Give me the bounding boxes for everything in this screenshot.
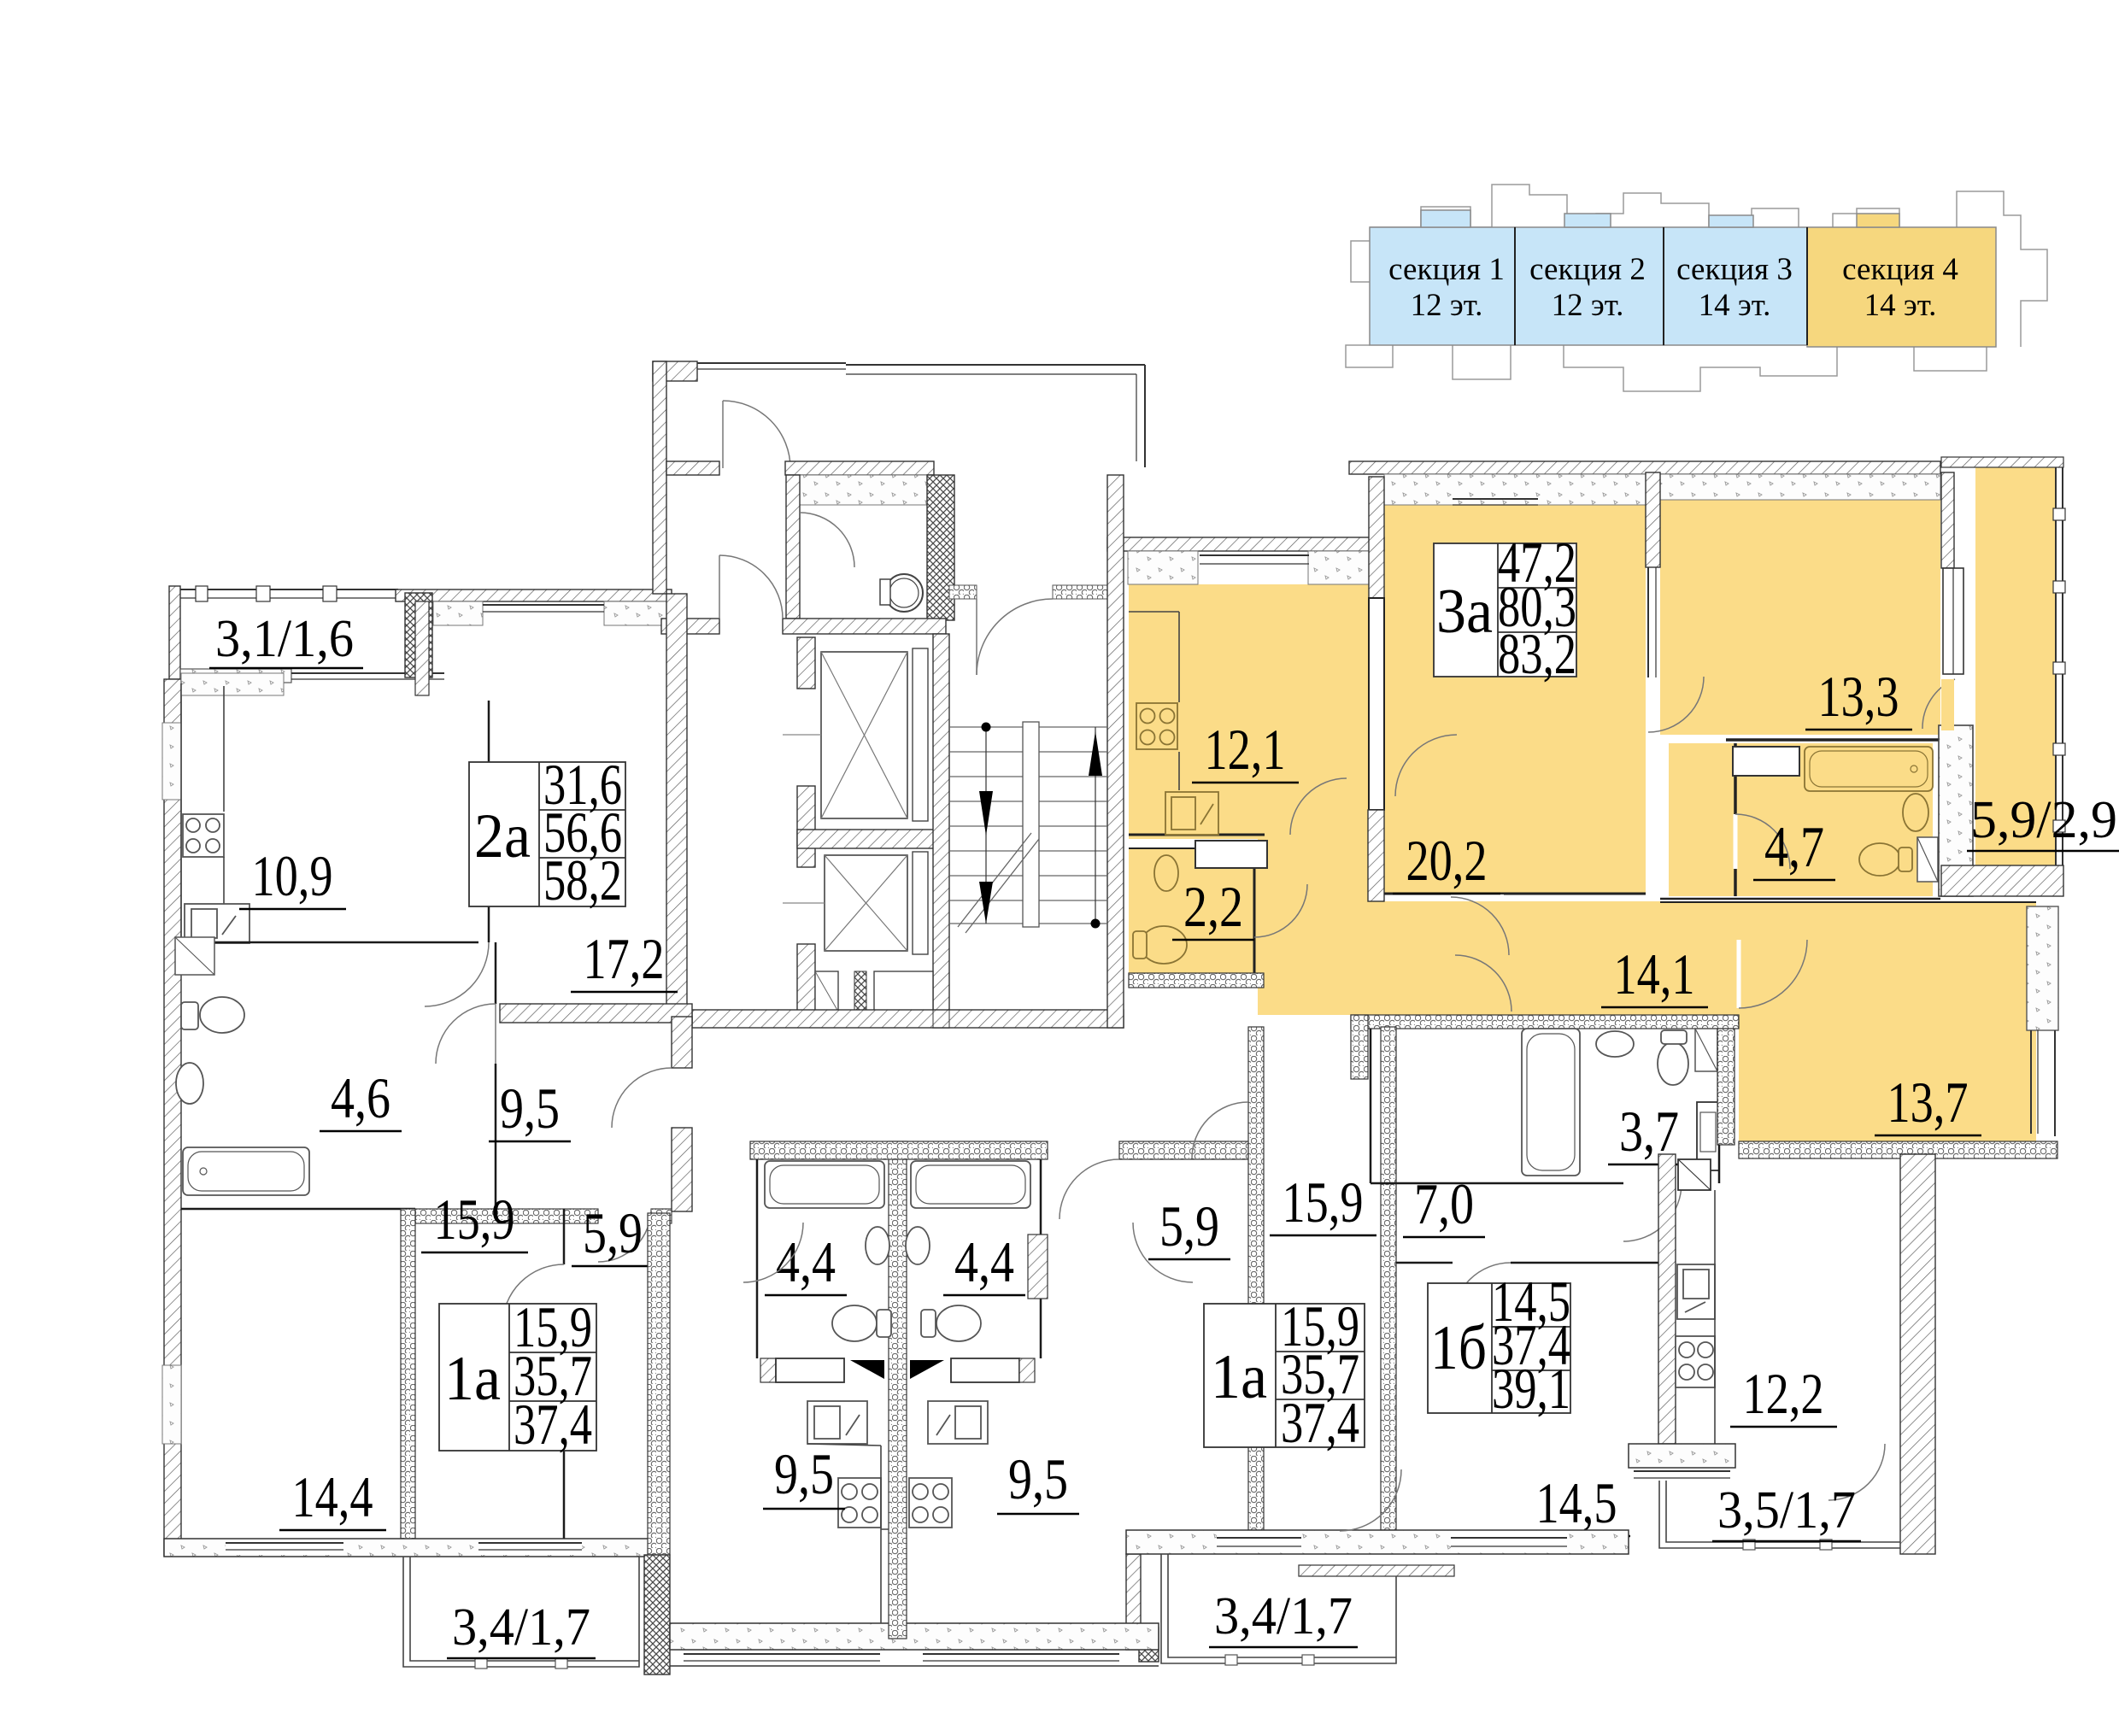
svg-text:58,2: 58,2 xyxy=(543,847,622,912)
svg-text:3,1/1,6: 3,1/1,6 xyxy=(215,610,354,668)
svg-text:3,5/1,7: 3,5/1,7 xyxy=(1717,1481,1856,1540)
svg-text:14 эт.: 14 эт. xyxy=(1864,288,1937,323)
svg-text:3,4/1,7: 3,4/1,7 xyxy=(1214,1587,1353,1645)
svg-text:2,2: 2,2 xyxy=(1183,874,1243,939)
svg-text:3,4/1,7: 3,4/1,7 xyxy=(452,1598,590,1657)
svg-text:секция 1: секция 1 xyxy=(1388,252,1505,287)
svg-text:1б: 1б xyxy=(1430,1313,1487,1383)
svg-text:1а: 1а xyxy=(1211,1342,1267,1412)
svg-text:14 эт.: 14 эт. xyxy=(1699,288,1771,323)
svg-text:4,7: 4,7 xyxy=(1764,814,1824,879)
svg-text:13,3: 13,3 xyxy=(1818,664,1899,729)
svg-text:15,9: 15,9 xyxy=(434,1187,515,1252)
svg-text:9,5: 9,5 xyxy=(1008,1446,1068,1511)
svg-text:2а: 2а xyxy=(474,801,531,871)
svg-text:1а: 1а xyxy=(444,1344,501,1414)
svg-text:37,4: 37,4 xyxy=(1281,1390,1359,1455)
svg-text:13,7: 13,7 xyxy=(1887,1070,1969,1135)
svg-text:10,9: 10,9 xyxy=(252,843,333,908)
svg-text:17,2: 17,2 xyxy=(584,926,665,991)
svg-text:секция 2: секция 2 xyxy=(1529,252,1646,287)
svg-text:5,9/2,9: 5,9/2,9 xyxy=(1970,791,2117,849)
svg-text:12 эт.: 12 эт. xyxy=(1411,288,1483,323)
svg-text:9,5: 9,5 xyxy=(774,1441,834,1506)
svg-text:4,6: 4,6 xyxy=(331,1065,390,1130)
svg-text:12 эт.: 12 эт. xyxy=(1552,288,1624,323)
svg-text:5,9: 5,9 xyxy=(583,1200,643,1265)
svg-text:секция 4: секция 4 xyxy=(1842,252,1958,287)
svg-text:7,0: 7,0 xyxy=(1414,1171,1474,1236)
svg-text:секция 3: секция 3 xyxy=(1676,252,1793,287)
svg-text:83,2: 83,2 xyxy=(1498,621,1576,686)
svg-text:37,4: 37,4 xyxy=(514,1392,592,1457)
svg-text:3а: 3а xyxy=(1436,577,1493,647)
svg-text:14,4: 14,4 xyxy=(292,1464,373,1529)
svg-text:9,5: 9,5 xyxy=(500,1076,560,1141)
svg-text:5,9: 5,9 xyxy=(1159,1193,1219,1258)
svg-text:4,4: 4,4 xyxy=(954,1229,1014,1294)
svg-text:12,2: 12,2 xyxy=(1743,1361,1824,1426)
svg-text:14,5: 14,5 xyxy=(1536,1470,1617,1535)
svg-text:4,4: 4,4 xyxy=(776,1229,836,1294)
svg-text:39,1: 39,1 xyxy=(1492,1356,1570,1421)
svg-text:20,2: 20,2 xyxy=(1406,828,1488,893)
svg-text:14,1: 14,1 xyxy=(1614,941,1695,1006)
svg-text:15,9: 15,9 xyxy=(1283,1170,1364,1235)
svg-text:12,1: 12,1 xyxy=(1205,717,1286,782)
